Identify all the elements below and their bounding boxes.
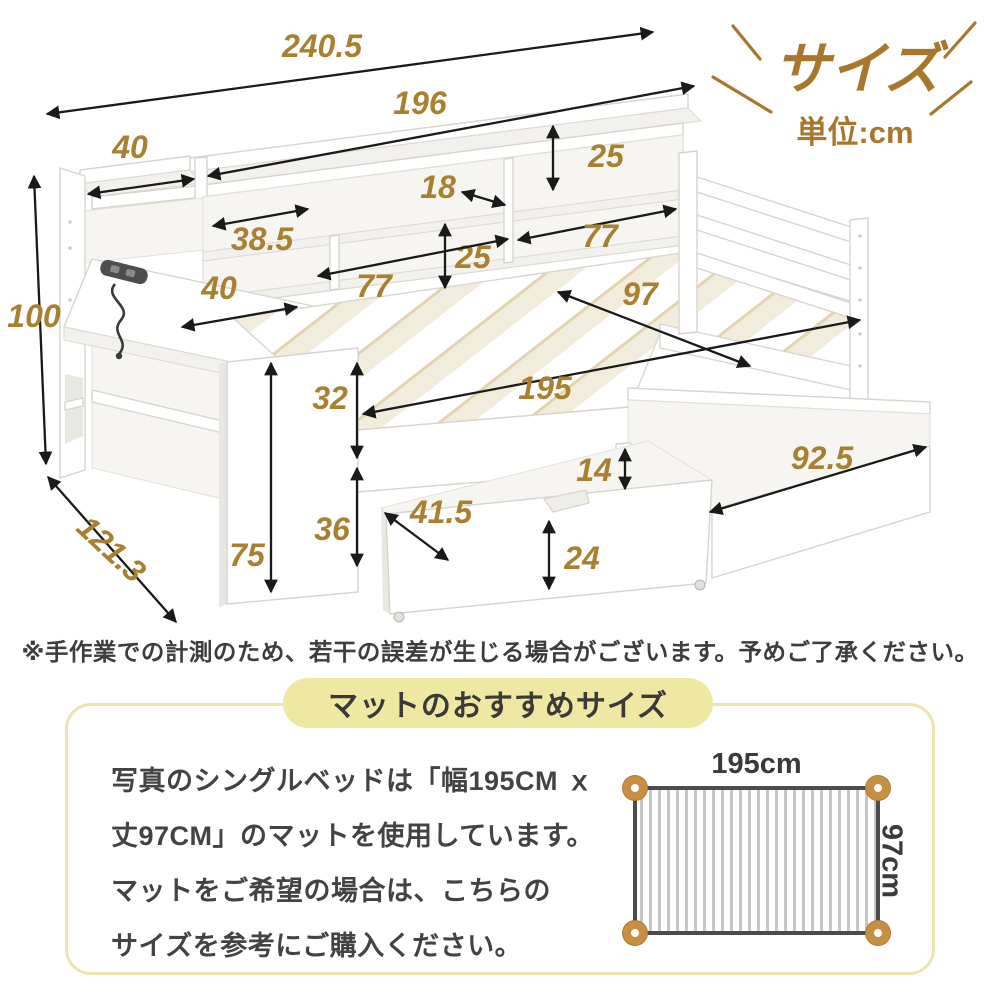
mat-title-pill: マットのおすすめサイズ xyxy=(283,678,713,728)
disclaimer-text: ※手作業での計測のため、若干の誤差が生じる場合がございます。予めご了承ください。 xyxy=(0,633,1000,667)
dimension-label: 24 xyxy=(563,540,600,576)
mat-recommendation-box: 写真のシングルベッドは「幅195CM ｘ 丈97CM」のマットを使用しています。… xyxy=(65,703,935,975)
dimension-label: 40 xyxy=(200,270,237,306)
dimension-label: 240.5 xyxy=(281,28,363,64)
size-title: サイズ xyxy=(774,37,949,100)
dimension-label: 18 xyxy=(420,169,456,205)
corner-marker xyxy=(623,921,647,945)
dimension-label: 32 xyxy=(312,380,348,416)
dimension-label: 195 xyxy=(518,370,573,406)
corner-marker xyxy=(866,921,890,945)
dimension-label: 100 xyxy=(7,298,61,334)
dimension-label: 25 xyxy=(454,239,492,275)
dimension-label: 38.5 xyxy=(231,221,294,257)
dimension-121.3: 121.3 xyxy=(48,477,176,622)
mat-description-line: サイズを参考にご購入ください。 xyxy=(111,919,616,974)
dimension-label: 25 xyxy=(587,138,625,174)
mat-height-label: 97cm xyxy=(874,823,907,897)
corner-marker xyxy=(866,776,890,800)
dimension-label: 77 xyxy=(582,218,620,254)
title-block: サイズ 単位:cm xyxy=(713,23,975,150)
dimension-label: 36 xyxy=(314,511,350,547)
dimension-label: 196 xyxy=(393,85,447,121)
dimension-label: 77 xyxy=(356,268,394,304)
mat-description: 写真のシングルベッドは「幅195CM ｘ 丈97CM」のマットを使用しています。… xyxy=(111,754,616,974)
dimension-100: 100 xyxy=(7,176,61,464)
mat-description-line: マットをご希望の場合は、こちらの xyxy=(111,864,616,919)
dimension-label: 40 xyxy=(111,129,148,165)
mat-width-label: 195cm xyxy=(637,748,876,781)
mat-size-diagram: 195cm 97cm xyxy=(633,786,880,935)
mat-description-line: 丈97CM」のマットを使用しています。 xyxy=(111,809,616,864)
drawer-wheel xyxy=(394,612,404,622)
unit-label: 単位:cm xyxy=(796,115,913,150)
dimension-label: 121.3 xyxy=(70,508,153,589)
dimension-label: 92.5 xyxy=(791,440,854,476)
mat-description-line: 写真のシングルベッドは「幅195CM ｘ xyxy=(111,754,616,809)
corner-marker xyxy=(623,776,647,800)
bed-size-diagram: サイズ 単位:cm 240.519640251838.5257777100409… xyxy=(0,0,1000,670)
size-guide-page: サイズ 単位:cm 240.519640251838.5257777100409… xyxy=(0,0,1000,1000)
dimension-label: 14 xyxy=(576,452,612,488)
bed-illustration xyxy=(60,94,930,622)
dimension-label: 75 xyxy=(229,537,266,573)
dimension-label: 97 xyxy=(622,276,660,312)
dimension-240.5: 240.5 xyxy=(47,28,653,114)
drawer-wheel xyxy=(695,580,705,590)
dimension-label: 41.5 xyxy=(409,494,473,530)
